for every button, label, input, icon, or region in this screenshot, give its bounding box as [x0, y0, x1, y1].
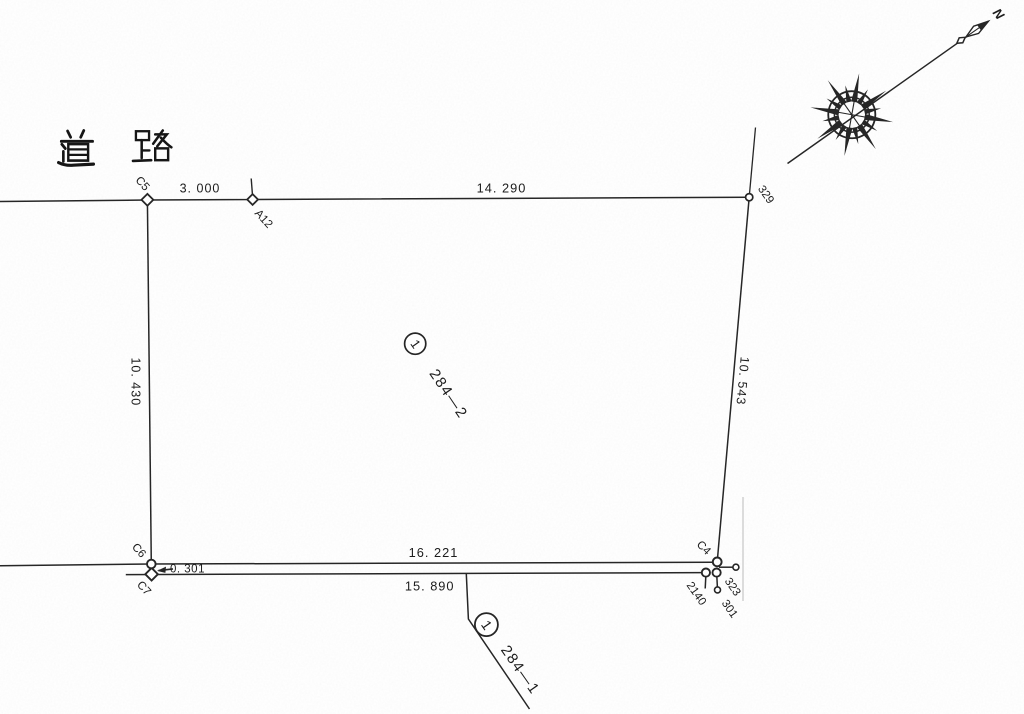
svg-text:0. 301: 0. 301: [170, 564, 205, 576]
svg-text:10. 430: 10. 430: [128, 357, 142, 406]
svg-text:16. 221: 16. 221: [409, 545, 459, 560]
svg-text:14. 290: 14. 290: [477, 181, 527, 196]
svg-text:3. 000: 3. 000: [180, 182, 221, 196]
svg-text:15. 890: 15. 890: [405, 579, 455, 594]
